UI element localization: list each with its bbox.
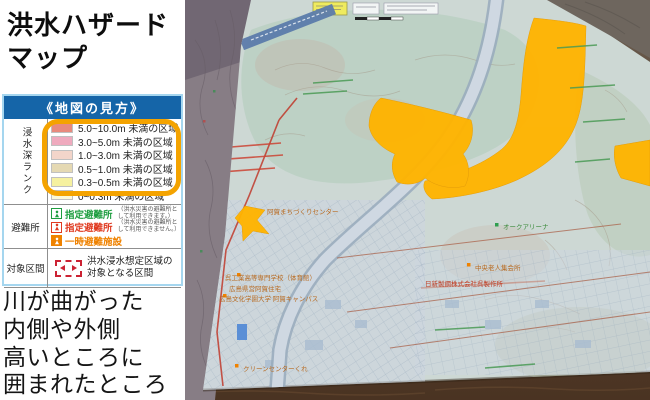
target-row: 洪水浸水想定区域の対象となる区間 (51, 254, 178, 283)
blue-building (237, 324, 247, 340)
caption-line: 高いところに (3, 344, 168, 372)
shelter-section-label: 避難所 (4, 205, 48, 248)
map-label: 広島文化学園大学 阿賀キャンパス (219, 294, 318, 303)
map-label: 中央老人集会所 (475, 263, 521, 272)
shelter-section: 避難所 指定避難所 （洪水災害の避難所として利用できます。） 指定避難所 （洪水… (4, 205, 181, 249)
depth-swatch (51, 150, 73, 160)
shelter-row: 指定避難所 （洪水災害の避難所として利用できません。） (51, 221, 178, 235)
depth-swatch (51, 190, 73, 200)
caption-text: 川が曲がった 内側や外側 高いところに 囲まれたところ (3, 288, 168, 399)
depth-row: 1.0~3.0m 未満の区域 (51, 148, 178, 161)
map-label: 日新製鋼株式会社呉製作所 (425, 279, 504, 288)
depth-row: 0.5~1.0m 未満の区域 (51, 162, 178, 175)
title-line-2: マップ (7, 42, 181, 75)
depth-swatch (51, 177, 73, 187)
depth-swatch (51, 163, 73, 173)
depth-row: 5.0~10.0m 未満の区域 (51, 121, 178, 134)
shelter-rows: 指定避難所 （洪水災害の避難所として利用できます。） 指定避難所 （洪水災害の避… (48, 205, 181, 248)
map-legend: 《地図の見方》 浸水深ランク 5.0~10.0m 未満の区域 3.0~5.0m … (2, 94, 183, 286)
designated-shelter-icon (51, 208, 62, 219)
map-label: 呉工業高等専門学校（体育館） (225, 273, 316, 282)
map-label: 広島県営阿賀住宅 (229, 284, 282, 293)
left-info-panel: 洪水ハザード マップ 《地図の見方》 浸水深ランク 5.0~10.0m 未満の区… (0, 0, 185, 400)
depth-rank-section: 浸水深ランク 5.0~10.0m 未満の区域 3.0~5.0m 未満の区域 1.… (4, 119, 181, 205)
map-photo-svg: 阿賀まちづくりセンター 呉工業高等専門学校（体育館） 広島県営阿賀住宅 広島文化… (185, 0, 650, 400)
scale-bar (355, 17, 403, 20)
depth-swatch (51, 123, 73, 133)
legend-header: 《地図の見方》 (4, 96, 181, 119)
caption-line: 内側や外側 (3, 316, 168, 344)
caption-line: 囲まれたところ (3, 371, 168, 399)
depth-swatch (51, 136, 73, 146)
hazard-map-photo: 阿賀まちづくりセンター 呉工業高等専門学校（体育館） 広島県営阿賀住宅 広島文化… (185, 0, 650, 400)
map-label: 阿賀まちづくりセンター (267, 207, 339, 216)
designated-shelter-unusable-icon (51, 222, 62, 233)
page-title: 洪水ハザード マップ (0, 0, 185, 74)
depth-rows: 5.0~10.0m 未満の区域 3.0~5.0m 未満の区域 1.0~3.0m … (48, 119, 181, 204)
depth-row: 3.0~5.0m 未満の区域 (51, 135, 178, 148)
depth-row: 0.3~0.5m 未満の区域 (51, 175, 178, 188)
temporary-shelter-icon (51, 235, 62, 246)
map-label: クリーンセンターくれ (243, 364, 308, 373)
title-line-1: 洪水ハザード (7, 9, 181, 42)
shelter-row: 指定避難所 （洪水災害の避難所として利用できます。） (51, 207, 178, 221)
target-extent-icon (55, 260, 82, 277)
depth-section-label: 浸水深ランク (4, 119, 48, 204)
map-label: オークアリーナ (503, 223, 549, 231)
depth-row: 0~0.3m 未満の区域 (51, 189, 178, 202)
target-section: 対象区間 洪水浸水想定区域の対象となる区間 (4, 249, 181, 288)
shelter-row: 一時避難施設 (51, 234, 178, 248)
caption-line: 川が曲がった (3, 288, 168, 316)
target-section-label: 対象区間 (4, 249, 48, 287)
